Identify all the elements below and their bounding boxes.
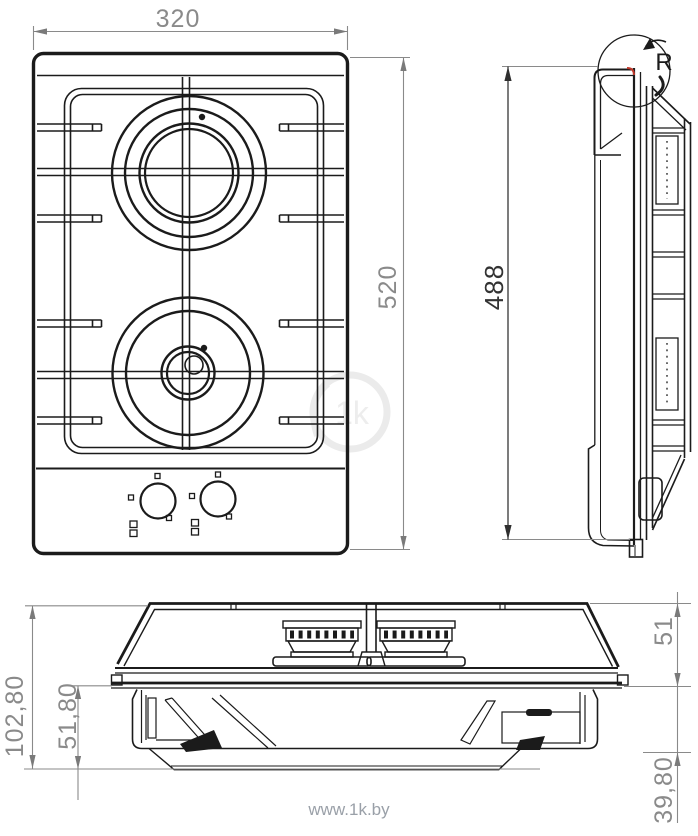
dimension-depth-520: 520 [350, 58, 410, 550]
watermark-url: www.1k.by [307, 800, 390, 819]
front-burner-left [273, 621, 371, 666]
detail-radius-label: R [655, 49, 672, 76]
front-view [111, 604, 628, 770]
control-knob-right [190, 472, 236, 535]
dim-102-label: 102,80 [1, 675, 29, 757]
side-grate-profile [647, 86, 691, 540]
dim-320-label: 320 [156, 5, 201, 33]
dimension-right-chain: 51 39,80 [590, 592, 691, 824]
dimension-width-320: 320 [34, 5, 348, 50]
dimension-height-488: 488 [479, 67, 630, 540]
dim-51-label: 51 [650, 616, 678, 646]
watermark-logo-text: 1k [335, 395, 370, 431]
front-burner-right [367, 621, 465, 666]
dim-488-label: 488 [479, 264, 509, 310]
burner-front [113, 298, 264, 449]
side-view: R [589, 35, 691, 557]
hob-dimensions-drawing: 1k [0, 0, 698, 836]
control-knob-left [129, 474, 176, 537]
dim-39-80-label: 39,80 [650, 756, 678, 824]
dim-520-label: 520 [374, 265, 402, 310]
technical-drawing-page: 1k [0, 0, 698, 836]
dimension-below-counter: 51,80 [54, 682, 112, 800]
dim-51-80-label: 51,80 [54, 682, 82, 750]
top-view [34, 54, 348, 554]
